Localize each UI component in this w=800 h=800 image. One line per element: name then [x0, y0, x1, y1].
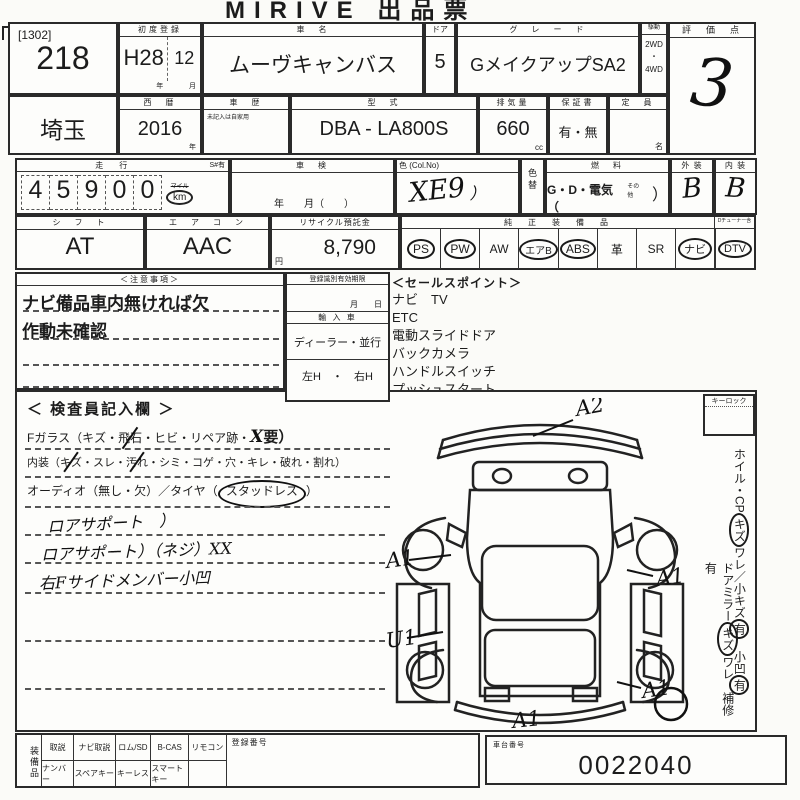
mileage-box: 走 行 S#有 4 5 9 0 0 マイル km — [15, 158, 230, 215]
equip-item-ps: PS — [402, 229, 440, 269]
grade-box: グ レ ー ド GメイクアップSA2 — [456, 22, 640, 95]
front-bumper-line — [440, 434, 640, 449]
right-taillight — [573, 688, 597, 701]
chassis-number: 0022040 — [487, 737, 785, 781]
prefecture-box: 埼玉 — [8, 95, 118, 155]
leader-line-a1-left — [409, 555, 451, 560]
equip-item-abs: ABS — [558, 229, 597, 269]
left-front-door-window — [419, 590, 436, 636]
side-note-circled-kizu: キズ — [717, 622, 737, 656]
drive-separator: ・ — [642, 51, 666, 64]
right-mirror — [614, 524, 633, 547]
right-rear-door-window — [644, 642, 661, 680]
capacity-label: 定 員 — [610, 97, 666, 110]
first-registration-label: 初度登録 — [120, 24, 200, 37]
accessories-table: 装備品 取説 ナビ取説 ロム/SD B-CAS リモコン ナンバー スペアキー … — [15, 733, 480, 788]
interior-line: 内装（キズ・スレ・汚れ・シミ・コゲ・穴・キレ・破れ・割れ） — [27, 454, 346, 470]
warranty-label: 保証書 — [550, 97, 606, 110]
leader-line-a1-right — [627, 570, 653, 576]
exterior-box: 外 装 B — [670, 158, 714, 215]
dotted-line — [25, 448, 390, 450]
shaken-label: 車 検 — [232, 160, 393, 173]
cell-navi-torisetsu: ナビ取説 — [74, 735, 115, 760]
color-code: XE9 — [408, 172, 467, 209]
audio-pre: オーディオ（無し・欠）／タイヤ（ — [27, 484, 218, 498]
equip-text: PW — [444, 239, 475, 259]
displacement-box: 排気量 660 cc — [478, 95, 548, 155]
fuel-box: 燃 料 G・D・電気（ その他 ） — [545, 158, 670, 215]
shaken-units: 年 月（ ） — [274, 195, 354, 210]
mark-a1-rear-bumper: A1 — [509, 706, 542, 730]
windshield — [482, 546, 598, 620]
shift-box: シ フ ト AT — [15, 215, 145, 270]
sales-point: ナビ TV — [392, 291, 756, 309]
model-code: DBA - LA800S — [292, 110, 476, 141]
dotted-line — [25, 640, 385, 642]
month-unit: 月 — [167, 81, 200, 91]
year-unit2: 年 — [189, 142, 196, 152]
fglass-tail: 要） — [263, 429, 293, 446]
right-front-door-window — [644, 590, 661, 636]
inspector-area: ＜ 検査員記入欄 ＞ Fガラス（キズ・飛石・ヒビ・リペア跡・X要） 内装（キズ・… — [15, 390, 757, 732]
equip-item-sr: SR — [636, 229, 675, 269]
sales-point: ハンドルスイッチ — [392, 363, 756, 381]
chassis-number-label: 車台番号 — [493, 740, 525, 750]
capacity-box: 定 員 名 — [608, 95, 668, 155]
sales-point: 電動スライドドア — [392, 327, 756, 345]
equip-item-airbag: エアB — [518, 229, 558, 269]
first-reg-era: H28 — [120, 37, 168, 81]
audio-tire-line: オーディオ（無し・欠）／タイヤ（スタッドレス） — [27, 482, 318, 499]
prefecture: 埼玉 — [10, 97, 116, 145]
mileage-digit: 4 — [21, 175, 50, 210]
sales-point: バックカメラ — [392, 345, 756, 363]
warranty-box: 保証書 有・無 — [548, 95, 608, 155]
headlamp-washer — [569, 469, 587, 483]
equip-item-pw: PW — [440, 229, 479, 269]
aircon-box: エ ア コ ン AAC — [145, 215, 270, 270]
fglass-line: Fガラス（キズ・飛石・ヒビ・リペア跡・X要） — [27, 426, 293, 447]
accessories-label: 装備品 — [17, 735, 42, 786]
equip-item-navi: ナビ — [675, 229, 714, 269]
interior-mark-kizu: キズ — [60, 454, 82, 470]
sales-points-area: ＜セールスポイント＞ ナビ TV ETC 電動スライドドア バックカメラ ハンド… — [392, 274, 756, 388]
equip-item-dtv: DTV — [714, 229, 754, 269]
history-label: 車 歴 — [204, 97, 288, 110]
hand-note-1: ロアサポート ） — [46, 507, 175, 538]
equip-text: PS — [407, 239, 435, 259]
first-registration-box: 初度登録 H28 12 年 月 — [118, 22, 202, 95]
mark-a2: A2 — [572, 398, 606, 421]
first-reg-month: 12 — [168, 37, 200, 81]
hand-note-3: 右Fサイドメンバー小凹 — [39, 564, 211, 594]
factory-equipment-box: 純 正 装 備 品 Dチューナー含 PS PW AW エアB ABS 革 SR … — [400, 215, 756, 270]
year-box: 西 暦 2016 年 — [118, 95, 202, 155]
handle-position-label: 左H ・ 右H — [287, 360, 388, 384]
rear-window — [485, 630, 595, 686]
cell-spare-key: スペアキー — [74, 761, 115, 786]
grade-label: グ レ ー ド — [458, 24, 638, 37]
mileage-digit: 0 — [134, 175, 162, 210]
equip-text: エアB — [519, 239, 558, 260]
shift-value: AT — [17, 230, 143, 261]
cabin-outline — [467, 490, 613, 696]
equip-text: AW — [490, 242, 509, 256]
cell-number-plate: ナンバー — [42, 761, 74, 786]
mileage-s-label: S#有 — [209, 160, 228, 171]
warranty-value: 有・無 — [550, 110, 606, 141]
caution-label: ＜注意事項＞ — [17, 274, 283, 286]
leader-line-a1-rear — [617, 682, 641, 688]
dotted-line — [25, 506, 390, 508]
drive-4wd: 4WD — [642, 64, 666, 77]
cell-smart-key: スマートキー — [151, 761, 189, 786]
keylock-label: キーロック — [705, 396, 753, 407]
mileage-digit: 0 — [106, 175, 134, 210]
shaken-box: 車 検 年 月（ ） — [230, 158, 395, 215]
left-taillight — [485, 688, 509, 701]
fuel-value: G・D・電気（ — [547, 181, 619, 215]
recycle-label: リサイクル預託金 — [272, 217, 398, 230]
displacement-unit: cc — [535, 143, 543, 152]
lot-number: 218 — [10, 42, 116, 74]
interior-grade: B — [715, 172, 756, 206]
aircon-label: エ ア コ ン — [147, 217, 268, 230]
cell-torisetsu: 取説 — [42, 735, 74, 760]
import-car-label: 輸 入 車 — [287, 312, 388, 324]
aircon-value: AAC — [147, 230, 268, 261]
sales-points-label: ＜セールスポイント＞ — [392, 274, 756, 291]
front-bumper-line — [438, 443, 642, 458]
displacement-label: 排気量 — [480, 97, 546, 110]
score-value: 3 — [665, 34, 758, 135]
cell-blank — [189, 761, 226, 786]
mark-u1-left-rear: U1 — [385, 625, 418, 653]
car-name-label: 車 名 — [204, 24, 422, 37]
dealer-parallel-label: ディーラー・並行 — [287, 324, 388, 360]
hand-note-2: ロアサポート）（ネジ）XX — [41, 535, 233, 566]
interior-mark-yogore: 汚れ — [126, 454, 148, 470]
equip-text: SR — [648, 242, 665, 256]
equip-text: ABS — [560, 239, 596, 259]
interior-pre: 内装（ — [27, 457, 60, 469]
car-damage-diagram: A2 A1 A1 U1 A1 A1 — [385, 398, 697, 730]
mileage-digit: 9 — [78, 175, 106, 210]
recycle-fee-box: リサイクル預託金 8,790 円 — [270, 215, 400, 270]
door-count: 5 — [426, 37, 454, 74]
year-label: 西 暦 — [120, 97, 200, 110]
cell-bcas: B-CAS — [151, 735, 189, 760]
registration-number-label: 登録番号 — [232, 737, 268, 748]
model-code-box: 型 式 DBA - LA800S — [290, 95, 478, 155]
color-change-box: 色替 — [520, 158, 545, 215]
mileage-digit: 5 — [50, 175, 78, 210]
cell-keyless: キーレス — [116, 761, 152, 786]
capacity-unit: 名 — [655, 141, 663, 152]
side-note-mirror: ドアミラーキズワレ 補修有 — [703, 562, 738, 724]
chassis-number-box: 車台番号 0022040 — [485, 735, 787, 785]
interior-mid: ・スレ・ — [82, 457, 126, 469]
history-box: 車 歴 未記入は自家用 — [202, 95, 290, 155]
color-change-label: 色替 — [526, 168, 539, 208]
auction-sheet: MIRIVE 出品票 [1302] 218 初度登録 H28 12 年 月 車 … — [0, 0, 800, 800]
inspector-title: ＜ 検査員記入欄 ＞ — [27, 398, 175, 419]
shift-label: シ フ ト — [17, 217, 143, 230]
color-box: 色 (Col.No) XE9 ） — [395, 158, 520, 215]
sales-point: ETC — [392, 309, 756, 327]
registration-validity-label: 登録識別有効期限 — [287, 274, 388, 285]
audio-tail: ） — [306, 484, 318, 498]
interior-box: 内 装 B — [714, 158, 757, 215]
mileage-label: 走 行 — [17, 160, 209, 171]
keylock-box: キーロック — [703, 394, 755, 436]
caution-line-2: 作動未確認 — [22, 317, 107, 342]
mark-a1-right-rear: A1 — [638, 675, 672, 703]
left-mirror — [447, 524, 466, 547]
side-note-text: ドアミラー — [721, 562, 735, 622]
caution-line-1: ナビ備品車内無ければ欠 — [22, 289, 209, 314]
fglass-mid: ・ヒビ・リペア跡・ — [142, 431, 250, 445]
equip-item-leather: 革 — [597, 229, 636, 269]
caution-notes-box: ＜注意事項＞ ナビ備品車内無ければ欠 作動未確認 — [15, 272, 285, 390]
door-box: ドア 5 — [424, 22, 456, 95]
cell-rom-sd: ロム/SD — [116, 735, 152, 760]
mark-a1-right-front: A1 — [652, 563, 686, 591]
equip-item-aw: AW — [479, 229, 518, 269]
tire-mark-studless: スタッドレス — [218, 480, 306, 508]
mark-a1-left-front: A1 — [385, 545, 416, 573]
year-value: 2016 — [120, 110, 200, 141]
mile-unit-label: マイル — [166, 181, 193, 190]
fglass-pre: Fガラス（キズ・ — [27, 431, 118, 445]
fuel-label: 燃 料 — [547, 160, 668, 173]
left-rear-door-window — [419, 642, 436, 680]
km-unit-circled: km — [166, 190, 193, 205]
displacement-value: 660 — [480, 110, 546, 141]
registration-date-units: 月 日 — [350, 299, 382, 310]
score-box: 評 価 点 3 — [668, 22, 756, 155]
recycle-amount: 8,790 — [272, 230, 398, 260]
door-label: ドア — [426, 24, 454, 37]
drive-2wd: 2WD — [642, 39, 666, 52]
lot-box: [1302] 218 — [8, 22, 118, 95]
recycle-unit: 円 — [275, 256, 283, 267]
equip-text: ナビ — [678, 238, 712, 260]
headlamp-washer — [493, 469, 511, 483]
equip-text: DTV — [718, 240, 752, 258]
exterior-grade: B — [671, 171, 714, 205]
fuel-other-label: その他 — [619, 181, 652, 199]
side-note-circled-kizu: キズ — [729, 513, 749, 547]
equipment-label: 純 正 装 備 品 — [402, 217, 714, 228]
corner-tick — [2, 26, 8, 40]
dotted-line — [23, 386, 279, 388]
fuel-close-paren: ） — [652, 181, 668, 205]
cell-remocon: リモコン — [189, 735, 226, 760]
grade-value: GメイクアップSA2 — [458, 37, 638, 77]
year-unit: 年 — [120, 81, 167, 91]
drive-label: 駆動 — [642, 24, 666, 35]
dotted-line — [25, 592, 385, 594]
dtv-note: Dチューナー含 — [714, 217, 754, 228]
dotted-line — [25, 688, 385, 690]
car-name-box: 車 名 ムーヴキャンバス — [202, 22, 424, 95]
color-label: 色 (Col.No) — [397, 160, 518, 173]
fglass-mark-tobiishi: 飛石 — [118, 429, 142, 446]
side-note-text: ホイル・CP — [732, 448, 746, 513]
model-label: 型 式 — [292, 97, 476, 110]
registration-validity-box: 登録識別有効期限 月 日 輸 入 車 ディーラー・並行 左H ・ 右H — [285, 272, 390, 402]
equip-text: 革 — [611, 241, 623, 258]
fglass-hand-x: X — [250, 427, 263, 447]
dotted-line — [23, 364, 279, 366]
color-paren: ） — [470, 184, 486, 203]
history-note: 未記入は自家用 — [204, 110, 288, 121]
interior-tail: ・シミ・コゲ・穴・キレ・破れ・割れ） — [148, 457, 346, 469]
dotted-line — [25, 476, 390, 478]
drive-box: 駆動 2WD ・ 4WD — [640, 22, 668, 95]
car-name: ムーヴキャンバス — [204, 37, 422, 79]
